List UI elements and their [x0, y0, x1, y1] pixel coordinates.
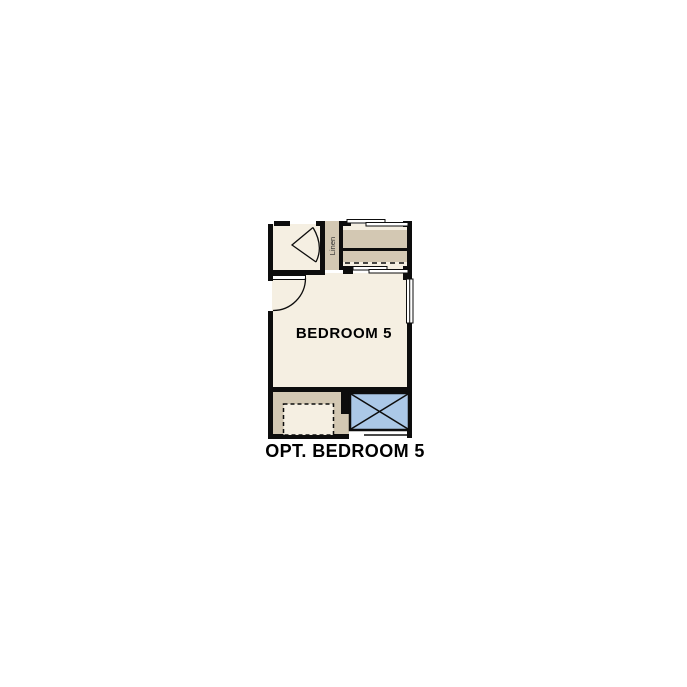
figure-caption: OPT. BEDROOM 5 [265, 441, 425, 461]
shower-pad [350, 393, 409, 430]
optional-cabinet-dashed-outline [284, 404, 334, 435]
bottom-pillar [341, 391, 349, 414]
wardrobe-bottom-stub [343, 266, 353, 274]
bottom-pillar-tan-base [341, 414, 349, 435]
sliding-panel [369, 270, 408, 274]
bedroom-door-leaf [273, 276, 306, 280]
floor-plan-drawing: Linen [0, 0, 687, 687]
linen-right-wall [339, 221, 343, 270]
window [407, 279, 414, 323]
bedroom-bottom-wall [268, 387, 412, 392]
wardrobe-shelves [343, 230, 408, 263]
linen-left-wall [320, 221, 325, 270]
shelf-upper [343, 230, 408, 248]
left-wall-lower [268, 311, 273, 439]
optional-cabinet [284, 404, 334, 435]
hall-bedroom-wall [268, 270, 325, 275]
top-wall-left-stub [274, 221, 290, 226]
floor-plan-figure: Linen [0, 0, 687, 687]
sliding-panel [366, 223, 408, 227]
shelf-lower [343, 251, 408, 262]
shelf-divider [343, 248, 408, 251]
linen-label: Linen [328, 237, 337, 255]
top-wall-mid-stub [316, 221, 325, 226]
bedroom-label: BEDROOM 5 [296, 325, 392, 342]
linen-closet: Linen [320, 221, 343, 270]
